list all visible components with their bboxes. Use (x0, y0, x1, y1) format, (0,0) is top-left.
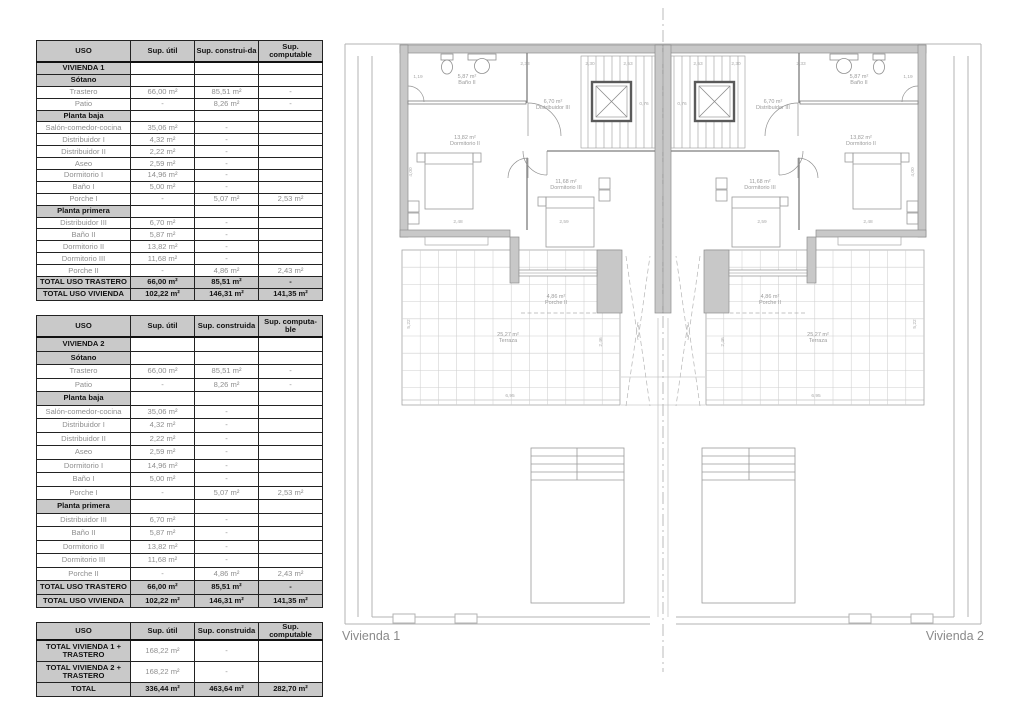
dimension-label: 2,30 (585, 61, 595, 67)
cell-value: 66,00 m² (131, 365, 195, 379)
row-label: Patio (37, 378, 131, 392)
row-label: Distribuidor II (37, 432, 131, 446)
cell-value: - (259, 365, 323, 379)
cell-value: 2,53 m² (259, 486, 323, 500)
dimension-label: 0,76 (677, 101, 687, 107)
cell-value: - (195, 661, 259, 682)
row-label: Dormitorio I (37, 459, 131, 473)
table-row: TOTAL USO TRASTERO66,00 m²85,51 m²- (37, 581, 323, 595)
cell-value: 14,96 m² (131, 459, 195, 473)
cell-value (259, 459, 323, 473)
cell-value: 8,26 m² (195, 98, 259, 110)
cell-value (259, 158, 323, 170)
cell-value: 102,22 m² (131, 288, 195, 300)
row-label: Trastero (37, 86, 131, 98)
column-header: Sup. computable (259, 41, 323, 63)
cell-value: - (195, 217, 259, 229)
row-label: TOTAL VIVIENDA 2 + TRASTERO (37, 661, 131, 682)
cell-value (195, 62, 259, 74)
table-row: Dormitorio II13,82 m²- (37, 540, 323, 554)
row-label: Dormitorio II (37, 241, 131, 253)
row-label: Distribuidor III (37, 217, 131, 229)
row-label: Distribuidor I (37, 134, 131, 146)
cell-value (259, 241, 323, 253)
table-row: Porche I-5,07 m²2,53 m² (37, 486, 323, 500)
cell-value: 5,87 m² (131, 527, 195, 541)
cell-value: - (195, 446, 259, 460)
row-label: Porche I (37, 486, 131, 500)
cell-value: 8,26 m² (195, 378, 259, 392)
vivienda-1-table: USOSup. útilSup. construi-daSup. computa… (36, 40, 323, 301)
row-label: Dormitorio III (37, 554, 131, 568)
dimension-label: 5,22 (406, 319, 412, 329)
row-label: Porche I (37, 193, 131, 205)
cell-value (259, 405, 323, 419)
column-header: Sup. construida (195, 316, 259, 338)
table-row: TOTAL USO VIVIENDA102,22 m²146,31 m²141,… (37, 288, 323, 300)
wardrobe (408, 213, 419, 224)
row-label: TOTAL (37, 682, 131, 696)
row-label: Baño I (37, 181, 131, 193)
pool (531, 448, 624, 603)
totals-table: USOSup. útilSup. construidaSup. computab… (36, 622, 323, 697)
row-label: Distribuidor I (37, 419, 131, 433)
table-row: Planta baja (37, 110, 323, 122)
room-label: 11,68 m²Dormitorio III (744, 179, 776, 191)
table-row: Porche II-4,86 m²2,43 m² (37, 265, 323, 277)
cell-value: 2,59 m² (131, 446, 195, 460)
driveway-markings (626, 256, 650, 406)
cell-value: - (195, 241, 259, 253)
dimension-label: 1,19 (903, 74, 913, 80)
row-label: TOTAL USO TRASTERO (37, 581, 131, 595)
cell-value: - (195, 419, 259, 433)
cell-value: 85,51 m² (195, 277, 259, 289)
cell-value: 2,43 m² (259, 265, 323, 277)
cell-value: 4,32 m² (131, 134, 195, 146)
cell-value (259, 134, 323, 146)
cell-value (259, 500, 323, 514)
column-header: Sup. útil (131, 41, 195, 63)
column-header: Sup. útil (131, 623, 195, 640)
cell-value (259, 392, 323, 406)
column-header: Sup. útil (131, 316, 195, 338)
room-label: 6,70 m²Distribuidor III (756, 99, 790, 111)
cell-value: 2,43 m² (259, 567, 323, 581)
table-row: Baño II5,87 m²- (37, 527, 323, 541)
cell-value (259, 527, 323, 541)
cell-value (259, 181, 323, 193)
cell-value: 85,51 m² (195, 581, 259, 595)
gate-notch (455, 614, 477, 623)
row-label: TOTAL VIVIENDA 1 + TRASTERO (37, 640, 131, 662)
row-label: Patio (37, 98, 131, 110)
cell-value (195, 500, 259, 514)
cell-value (259, 661, 323, 682)
cell-value: - (131, 378, 195, 392)
cell-value: - (259, 86, 323, 98)
row-label: Salón-comedor-cocina (37, 122, 131, 134)
cell-value: - (195, 170, 259, 182)
cell-value: - (195, 229, 259, 241)
row-label: Distribuidor II (37, 146, 131, 158)
table-row: Porche II-4,86 m²2,43 m² (37, 567, 323, 581)
dimension-label: 2,48 (453, 219, 463, 225)
cell-value: 146,31 m² (195, 594, 259, 608)
bed-dormitorio-2 (425, 153, 473, 209)
column-header: Sup. computa-ble (259, 316, 323, 338)
table-row: Aseo2,59 m²- (37, 446, 323, 460)
table-row: TOTAL USO TRASTERO66,00 m²85,51 m²- (37, 277, 323, 289)
row-label: Dormitorio III (37, 253, 131, 265)
cell-value: 35,06 m² (131, 405, 195, 419)
cell-value (195, 205, 259, 217)
table-row: Trastero66,00 m²85,51 m²- (37, 86, 323, 98)
cell-value (259, 432, 323, 446)
table-header: USOSup. útilSup. construidaSup. computa-… (37, 316, 323, 338)
table-row: VIVIENDA 2 (37, 337, 323, 351)
cell-value (259, 640, 323, 662)
table-row: Planta baja (37, 392, 323, 406)
cell-value: 5,07 m² (195, 486, 259, 500)
cell-value (131, 110, 195, 122)
dimension-label: 6,95 (811, 393, 821, 399)
cell-value (131, 205, 195, 217)
cell-value (259, 351, 323, 365)
table-row: Distribuidor III6,70 m²- (37, 217, 323, 229)
cell-value: 168,22 m² (131, 640, 195, 662)
cell-value: - (259, 581, 323, 595)
floor-plan: 5,87 m²Baño II5,87 m²Baño II6,70 m²Distr… (338, 8, 1030, 720)
room-label: 11,68 m²Dormitorio III (550, 179, 582, 191)
cell-value (259, 337, 323, 351)
cell-value: - (259, 277, 323, 289)
table-row: Planta primera (37, 205, 323, 217)
cell-value: - (259, 98, 323, 110)
cell-value: 13,82 m² (131, 540, 195, 554)
row-label: Baño II (37, 527, 131, 541)
room-label: 5,87 m²Baño II (458, 74, 477, 86)
column-header: Sup. construida (195, 623, 259, 640)
cell-value: - (195, 527, 259, 541)
cell-value (259, 446, 323, 460)
cell-value (195, 110, 259, 122)
cell-value: - (259, 378, 323, 392)
row-label: Sótano (37, 351, 131, 365)
cell-value: 141,35 m² (259, 288, 323, 300)
table-row: Patio-8,26 m²- (37, 98, 323, 110)
toilet-tank (441, 54, 453, 60)
row-label: Distribuidor III (37, 513, 131, 527)
cell-value: - (195, 134, 259, 146)
table-row: Dormitorio I14,96 m²- (37, 170, 323, 182)
table-row: Baño II5,87 m²- (37, 229, 323, 241)
table-row: Porche I-5,07 m²2,53 m² (37, 193, 323, 205)
sink-icon (475, 59, 490, 74)
cell-value: 102,22 m² (131, 594, 195, 608)
cell-value: 146,31 m² (195, 288, 259, 300)
column-header: Sup. computable (259, 623, 323, 640)
cell-value: - (195, 540, 259, 554)
room-label: 4,86 m²Porche II (759, 294, 781, 306)
doorstep (425, 237, 488, 245)
table-row: TOTAL VIVIENDA 1 + TRASTERO168,22 m²- (37, 640, 323, 662)
cell-value: - (195, 158, 259, 170)
drawing-sheet: USOSup. útilSup. construi-daSup. computa… (0, 0, 1030, 728)
dimension-label: 0,76 (639, 101, 649, 107)
cell-value: 2,53 m² (259, 193, 323, 205)
table-row: Baño I5,00 m²- (37, 473, 323, 487)
table-body: VIVIENDA 1SótanoTrastero66,00 m²85,51 m²… (37, 62, 323, 300)
cell-value (259, 554, 323, 568)
elevator-shaft (592, 82, 631, 121)
table-row: Distribuidor I4,32 m²- (37, 419, 323, 433)
room-label: 25,27 m²Terraza (497, 332, 519, 344)
table-row: VIVIENDA 1 (37, 62, 323, 74)
dimension-label: 2,33 (796, 61, 806, 67)
table-header: USOSup. útilSup. construi-daSup. computa… (37, 41, 323, 63)
cell-value (259, 253, 323, 265)
cell-value (259, 110, 323, 122)
row-label: Porche II (37, 567, 131, 581)
table-row: Distribuidor II2,22 m²- (37, 146, 323, 158)
cell-value (259, 540, 323, 554)
row-label: Planta baja (37, 110, 131, 122)
dimension-label: 1,19 (413, 74, 423, 80)
cell-value: - (131, 98, 195, 110)
vivienda-2-table: USOSup. útilSup. construidaSup. computa-… (36, 315, 323, 608)
cell-value: - (195, 432, 259, 446)
vivienda-2-label: Vivienda 2 (926, 629, 984, 643)
dimension-label: 2,48 (863, 219, 873, 225)
table-row: Dormitorio III11,68 m²- (37, 554, 323, 568)
dimension-label: 6,95 (505, 393, 515, 399)
row-label: Trastero (37, 365, 131, 379)
table-row: Aseo2,59 m²- (37, 158, 323, 170)
cell-value: - (195, 513, 259, 527)
cell-value: 5,87 m² (131, 229, 195, 241)
cell-value: 282,70 m² (259, 682, 323, 696)
dimension-label: 2,46 (720, 337, 726, 347)
cell-value: - (131, 567, 195, 581)
cell-value: 5,07 m² (195, 193, 259, 205)
cell-value: - (131, 486, 195, 500)
cell-value: - (195, 122, 259, 134)
vivienda-1-label: Vivienda 1 (342, 629, 400, 643)
row-label: TOTAL USO VIVIENDA (37, 594, 131, 608)
cell-value (131, 351, 195, 365)
cell-value (259, 419, 323, 433)
cell-value: 463,64 m² (195, 682, 259, 696)
cell-value (259, 122, 323, 134)
table-row: TOTAL336,44 m²463,64 m²282,70 m² (37, 682, 323, 696)
dimension-label: 4,00 (408, 167, 414, 177)
wardrobe (599, 178, 610, 189)
cell-value (131, 74, 195, 86)
toilet-icon (442, 60, 453, 74)
row-label: TOTAL USO TRASTERO (37, 277, 131, 289)
row-label: Dormitorio II (37, 540, 131, 554)
cell-value (131, 500, 195, 514)
cell-value (131, 337, 195, 351)
cell-value: - (195, 146, 259, 158)
cell-value: - (195, 473, 259, 487)
row-label: Aseo (37, 158, 131, 170)
room-label: 13,82 m²Dormitorio II (846, 135, 876, 147)
cell-value (259, 205, 323, 217)
cell-value: 6,70 m² (131, 513, 195, 527)
row-label: Planta primera (37, 205, 131, 217)
row-label: VIVIENDA 1 (37, 62, 131, 74)
cell-value (259, 217, 323, 229)
table-row: Distribuidor II2,22 m²- (37, 432, 323, 446)
wardrobe (599, 190, 610, 201)
cell-value (195, 392, 259, 406)
cell-value (259, 513, 323, 527)
dimension-label: 2,53 (623, 61, 633, 67)
dimension-label: 2,53 (693, 61, 703, 67)
cell-value (259, 146, 323, 158)
cell-value (259, 170, 323, 182)
table-row: Salón-comedor-cocina35,06 m²- (37, 122, 323, 134)
row-label: Baño II (37, 229, 131, 241)
gate-notch (393, 614, 415, 623)
row-label: TOTAL USO VIVIENDA (37, 288, 131, 300)
row-label: Dormitorio I (37, 170, 131, 182)
table-row: Sótano (37, 351, 323, 365)
cell-value (131, 62, 195, 74)
table-row: TOTAL VIVIENDA 2 + TRASTERO168,22 m²- (37, 661, 323, 682)
cell-value: 141,35 m² (259, 594, 323, 608)
cell-value: 14,96 m² (131, 170, 195, 182)
room-label: 4,86 m²Porche II (545, 294, 567, 306)
row-label: Salón-comedor-cocina (37, 405, 131, 419)
cell-value: 66,00 m² (131, 86, 195, 98)
cell-value: - (131, 193, 195, 205)
bed-dormitorio-3 (546, 197, 594, 247)
dimension-label: 5,22 (912, 319, 918, 329)
cell-value: 11,68 m² (131, 554, 195, 568)
room-label: 13,82 m²Dormitorio II (450, 135, 480, 147)
cell-value: 85,51 m² (195, 86, 259, 98)
cell-value: 66,00 m² (131, 277, 195, 289)
dimension-label: 2,33 (520, 61, 530, 67)
dimension-label: 2,59 (559, 219, 569, 225)
cell-value: 168,22 m² (131, 661, 195, 682)
table-row: Baño I5,00 m²- (37, 181, 323, 193)
cell-value: 4,32 m² (131, 419, 195, 433)
cell-value: - (195, 405, 259, 419)
cell-value: - (195, 640, 259, 662)
row-label: Porche II (37, 265, 131, 277)
table-row: Dormitorio I14,96 m²- (37, 459, 323, 473)
table-row: Sótano (37, 74, 323, 86)
cell-value: - (195, 253, 259, 265)
cell-value (259, 62, 323, 74)
cell-value: - (195, 554, 259, 568)
interior-walls (408, 53, 655, 230)
cell-value: 4,86 m² (195, 567, 259, 581)
room-label: 6,70 m²Distribuidor III (536, 99, 570, 111)
column-header: USO (37, 41, 131, 63)
wardrobe (408, 201, 419, 212)
table-row: Dormitorio III11,68 m²- (37, 253, 323, 265)
cell-value: 11,68 m² (131, 253, 195, 265)
table-row: Salón-comedor-cocina35,06 m²- (37, 405, 323, 419)
cell-value (195, 351, 259, 365)
cell-value: 2,59 m² (131, 158, 195, 170)
dimension-label: 2,59 (757, 219, 767, 225)
table-body: TOTAL VIVIENDA 1 + TRASTERO168,22 m²-TOT… (37, 640, 323, 697)
column-header: USO (37, 316, 131, 338)
table-row: Trastero66,00 m²85,51 m²- (37, 365, 323, 379)
cell-value: 13,82 m² (131, 241, 195, 253)
row-label: Planta primera (37, 500, 131, 514)
table-row: Dormitorio II13,82 m²- (37, 241, 323, 253)
cell-value: - (195, 459, 259, 473)
table-row: Distribuidor I4,32 m²- (37, 134, 323, 146)
dimension-label: 2,46 (598, 337, 604, 347)
table-row: Planta primera (37, 500, 323, 514)
table-header: USOSup. útilSup. construidaSup. computab… (37, 623, 323, 640)
cell-value (195, 337, 259, 351)
cell-value (131, 392, 195, 406)
dimension-label: 4,00 (910, 167, 916, 177)
cell-value (195, 74, 259, 86)
cell-value: 2,22 m² (131, 146, 195, 158)
cell-value: 66,00 m² (131, 581, 195, 595)
dimension-label: 2,30 (731, 61, 741, 67)
cell-value: 35,06 m² (131, 122, 195, 134)
cell-value: 6,70 m² (131, 217, 195, 229)
table-row: Patio-8,26 m²- (37, 378, 323, 392)
table-row: Distribuidor III6,70 m²- (37, 513, 323, 527)
row-label: Baño I (37, 473, 131, 487)
cell-value: - (195, 181, 259, 193)
cell-value: 5,00 m² (131, 181, 195, 193)
room-label: 5,87 m²Baño II (850, 74, 869, 86)
column-header: Sup. construi-da (195, 41, 259, 63)
column-header: USO (37, 623, 131, 640)
cell-value: 5,00 m² (131, 473, 195, 487)
cell-value: 4,86 m² (195, 265, 259, 277)
cell-value: - (131, 265, 195, 277)
cell-value (259, 473, 323, 487)
bathroom-fixtures (441, 54, 496, 74)
cell-value (259, 229, 323, 241)
table-row: TOTAL USO VIVIENDA102,22 m²146,31 m²141,… (37, 594, 323, 608)
row-label: Aseo (37, 446, 131, 460)
cell-value: 85,51 m² (195, 365, 259, 379)
row-label: Planta baja (37, 392, 131, 406)
room-label: 25,27 m²Terraza (807, 332, 829, 344)
row-label: Sótano (37, 74, 131, 86)
row-label: VIVIENDA 2 (37, 337, 131, 351)
table-body: VIVIENDA 2SótanoTrastero66,00 m²85,51 m²… (37, 337, 323, 608)
cell-value: 336,44 m² (131, 682, 195, 696)
cell-value (259, 74, 323, 86)
cell-value: 2,22 m² (131, 432, 195, 446)
